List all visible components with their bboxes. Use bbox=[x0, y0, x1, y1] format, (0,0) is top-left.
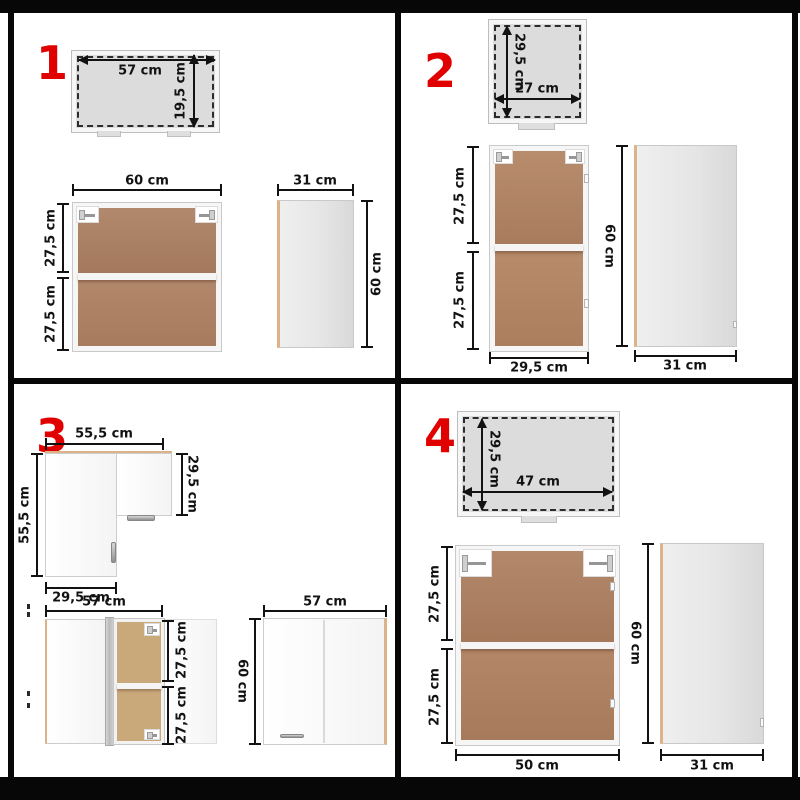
dimension-label: 60 cm bbox=[628, 621, 643, 665]
cabinet-side-view bbox=[660, 543, 764, 744]
shelf bbox=[461, 642, 614, 649]
dimension-arrow bbox=[463, 491, 612, 493]
quadrant-number: 4 bbox=[424, 413, 456, 459]
frame-left bbox=[8, 13, 14, 777]
divider-vertical bbox=[395, 13, 401, 777]
door-catch-icon bbox=[610, 699, 615, 708]
hinge-icon bbox=[459, 549, 492, 577]
door-catch-icon bbox=[610, 582, 615, 591]
cabinet-front-view bbox=[455, 545, 620, 746]
cabinet-foot bbox=[521, 516, 557, 523]
dimension-label: 29,5 cm bbox=[487, 430, 502, 488]
hinge-icon bbox=[583, 549, 616, 577]
frame-top bbox=[0, 0, 800, 13]
dimension-label: 31 cm bbox=[690, 759, 734, 774]
frame-right bbox=[792, 13, 798, 777]
dimension-line bbox=[446, 546, 448, 641]
divider-horizontal bbox=[8, 378, 792, 384]
dimension-line bbox=[446, 648, 448, 744]
dimension-arrow bbox=[481, 419, 483, 510]
dimension-label: 50 cm bbox=[515, 759, 559, 774]
wood-back-panel bbox=[461, 551, 614, 740]
product-dimension-sheet: 1 57 cm 19,5 cm 60 cm 27,5 cm 27,5 cm 31… bbox=[0, 0, 800, 800]
dimension-line bbox=[660, 754, 764, 756]
dimension-line bbox=[647, 543, 649, 744]
dimension-label: 27,5 cm bbox=[428, 565, 443, 623]
door-catch-icon bbox=[760, 718, 764, 727]
dimension-label: 47 cm bbox=[516, 475, 560, 490]
frame-bottom bbox=[0, 777, 800, 800]
dimension-line bbox=[455, 754, 620, 756]
dimension-label: 27,5 cm bbox=[428, 668, 443, 726]
